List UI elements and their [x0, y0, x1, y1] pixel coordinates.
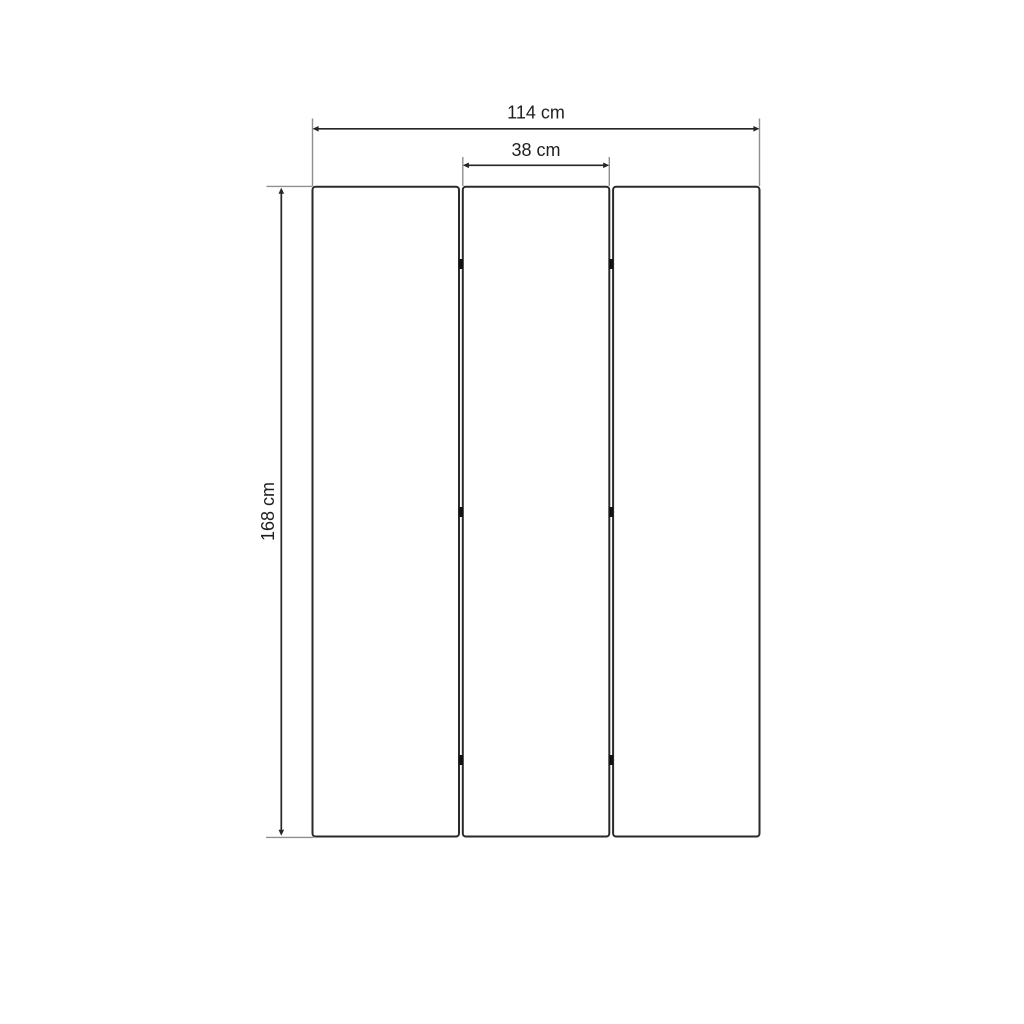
svg-text:114 cm: 114 cm	[507, 103, 565, 123]
svg-text:168 cm: 168 cm	[258, 482, 278, 541]
svg-text:38 cm: 38 cm	[511, 140, 560, 160]
